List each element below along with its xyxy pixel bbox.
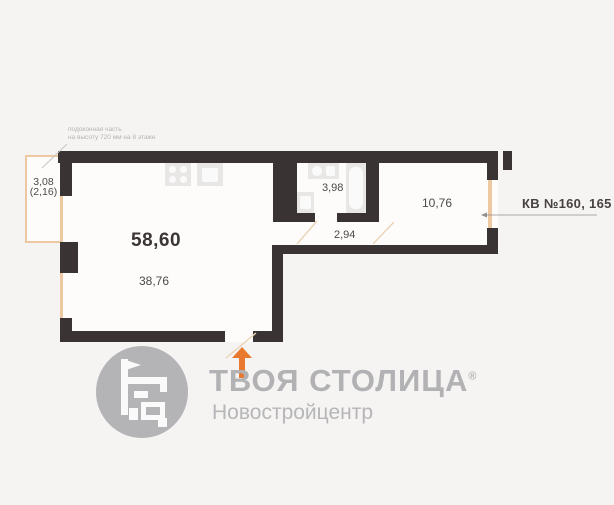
windowsill-annotation-line1: подоконная часть — [68, 126, 156, 134]
bathroom-door-swing — [297, 221, 317, 244]
bathroom-area-label: 3,98 — [322, 182, 343, 194]
windowsill-annotation-line2: на высоту 720 мм на 8 этаже — [68, 134, 156, 142]
brand-name-text: ТВОЯ СТОЛИЦА — [209, 363, 468, 398]
bedroom-area-label: 10,76 — [422, 196, 452, 210]
windowsill-annotation: подоконная часть на высоту 720 мм на 8 э… — [68, 126, 156, 142]
registered-trademark-icon: ® — [468, 371, 477, 383]
brand-name: ТВОЯ СТОЛИЦА® — [209, 363, 477, 399]
apartment-number-label: КВ №160, 165 — [522, 196, 612, 211]
bedroom-door-swing — [373, 222, 394, 244]
annotation-leader-line — [42, 144, 67, 168]
hallway-area-label: 2,94 — [334, 229, 355, 241]
brand-building-icon — [96, 346, 188, 438]
plan-annotation-lines — [0, 0, 614, 505]
floor-plan-page: подоконная часть на высоту 720 мм на 8 э… — [0, 0, 614, 505]
total-area-label: 58,60 — [131, 230, 181, 252]
balcony-dim-reduced: (2,16) — [25, 187, 62, 197]
living-room-area-label: 38,76 — [139, 274, 169, 288]
apartment-leader-arrowhead — [481, 213, 487, 218]
balcony-dimensions: 3,08 (2,16) — [25, 177, 62, 197]
brand-subtitle: Новостройцентр — [212, 401, 373, 425]
brand-logo-circle — [96, 346, 188, 438]
